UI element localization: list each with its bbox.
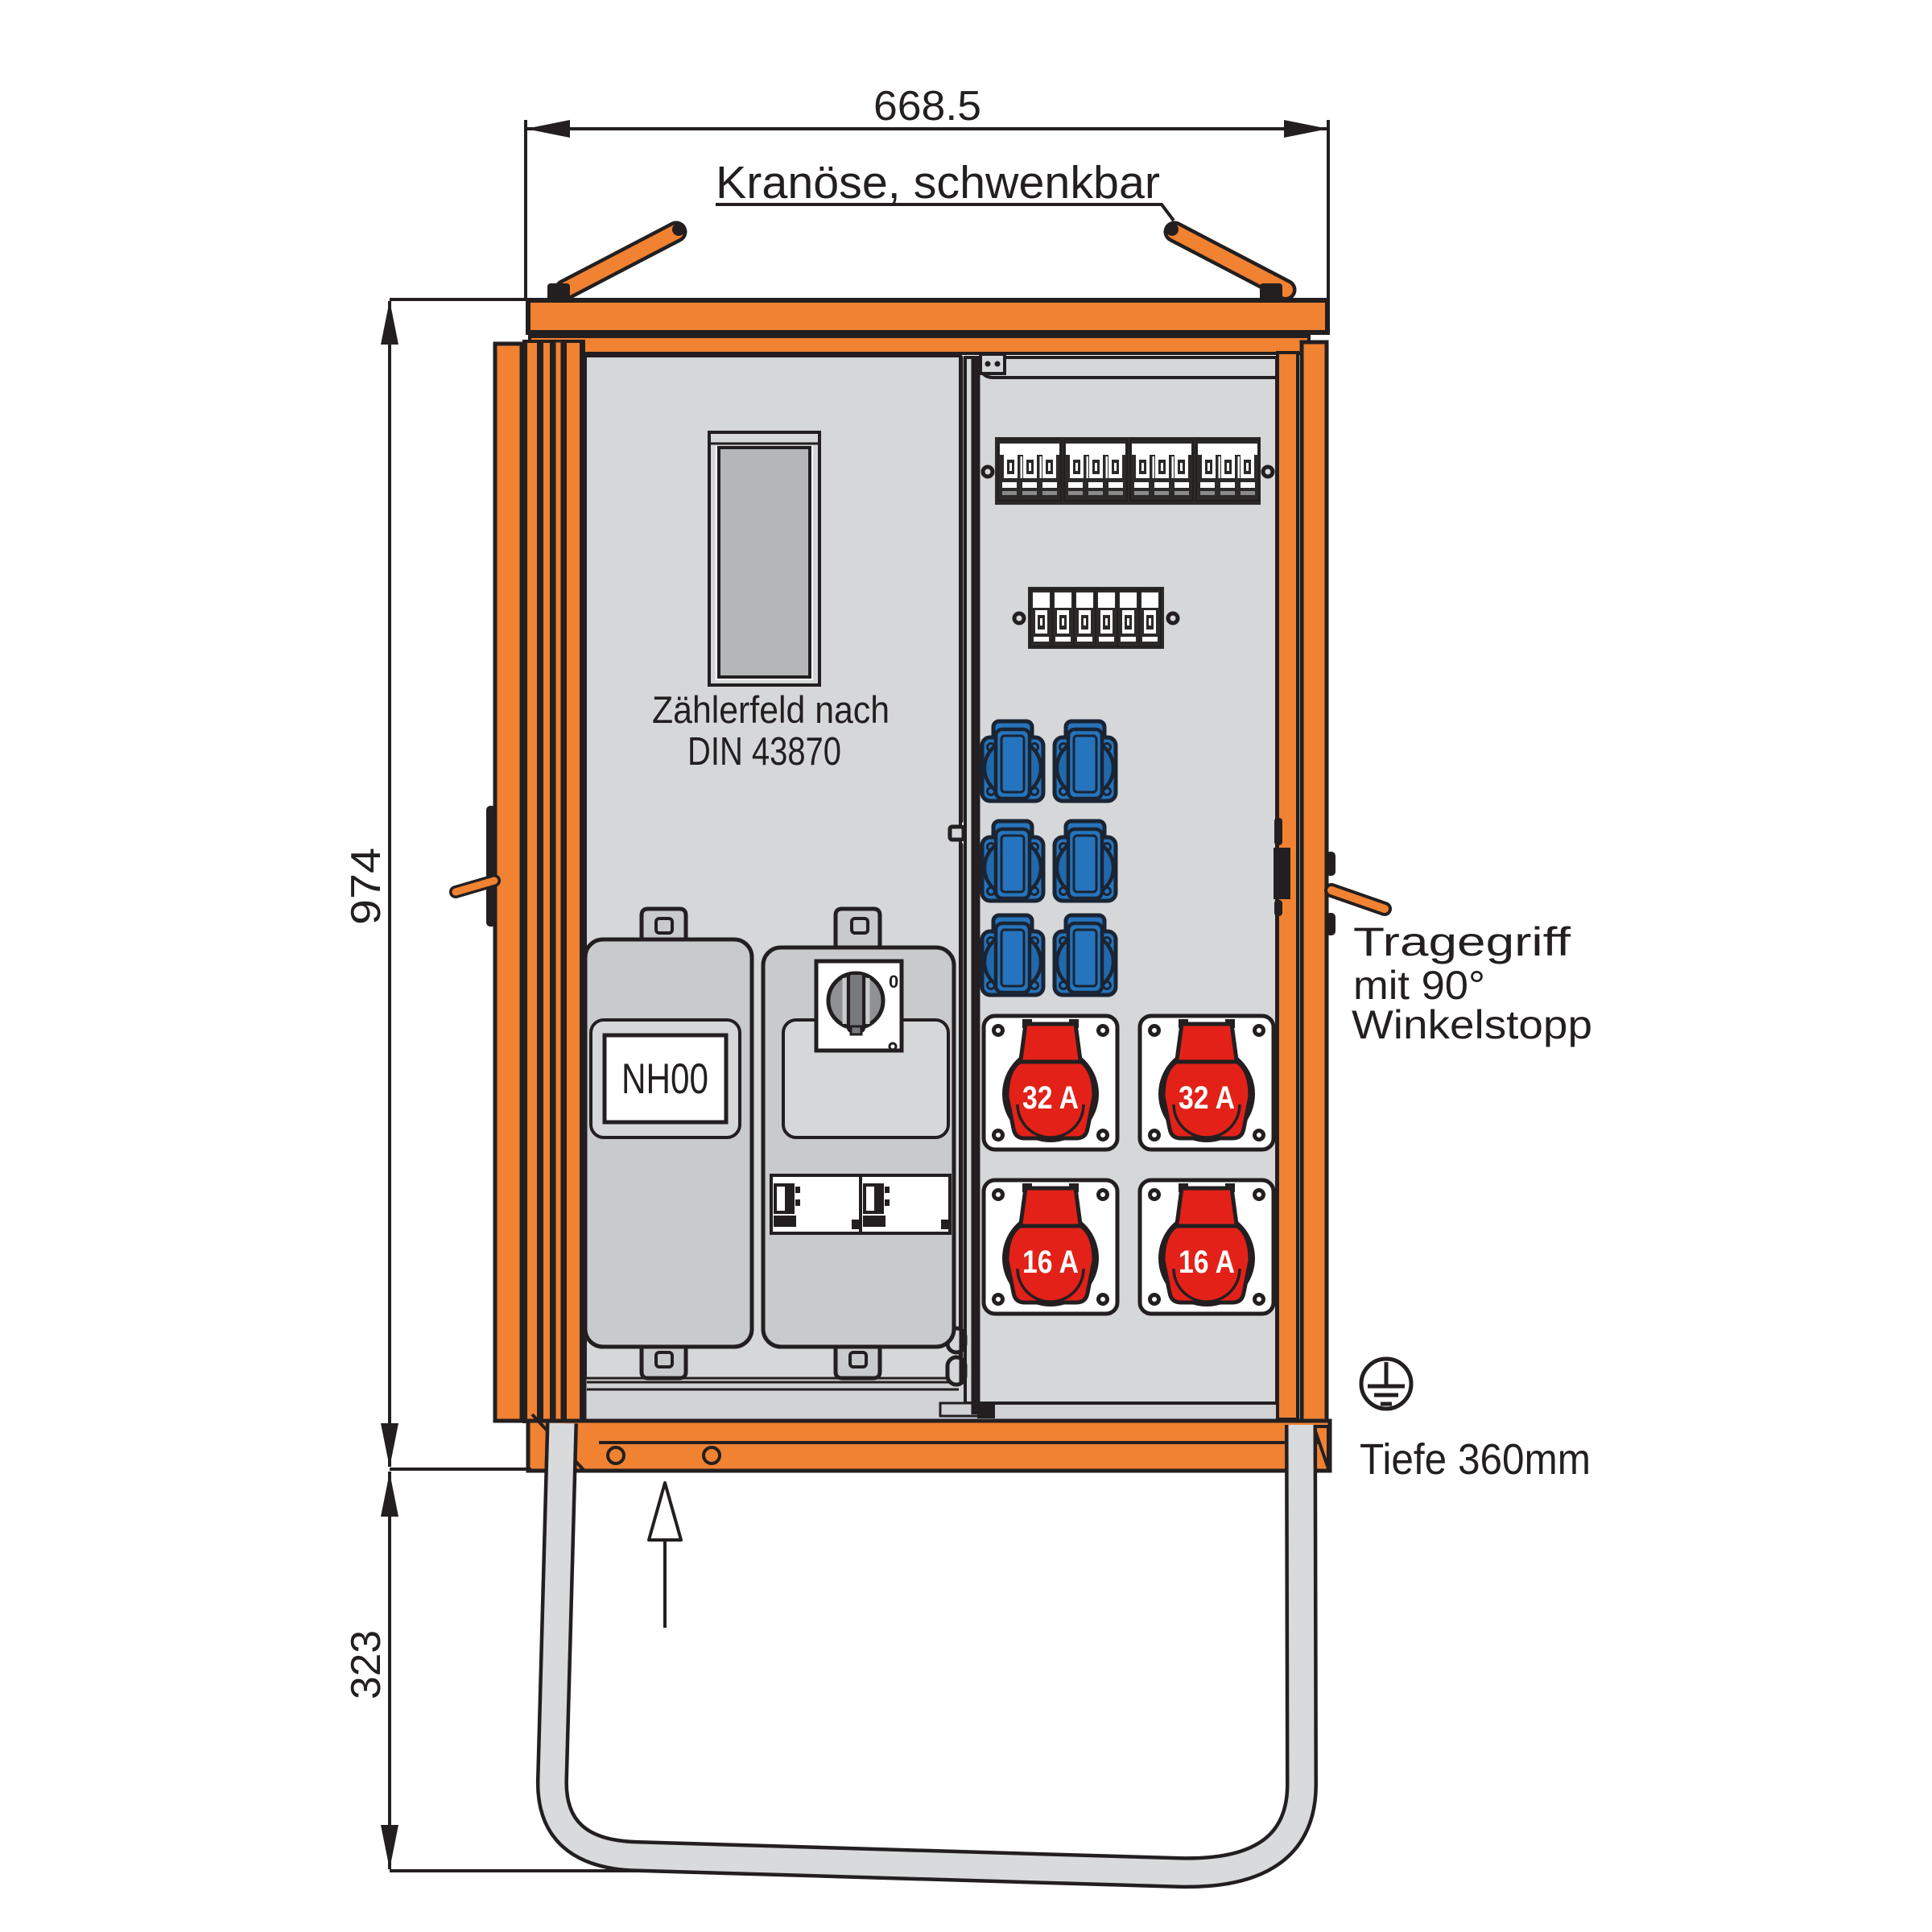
svg-text:DIN 43870: DIN 43870 bbox=[687, 730, 841, 774]
svg-text:Tiefe 360mm: Tiefe 360mm bbox=[1360, 1435, 1591, 1484]
svg-text:16 A: 16 A bbox=[1022, 1245, 1079, 1280]
svg-text:16 A: 16 A bbox=[1179, 1245, 1235, 1280]
svg-text:mit 90°: mit 90° bbox=[1353, 963, 1485, 1008]
svg-text:32 A: 32 A bbox=[1022, 1080, 1079, 1116]
svg-text:0: 0 bbox=[889, 972, 898, 992]
svg-text:NH00: NH00 bbox=[621, 1055, 708, 1103]
svg-text:668.5: 668.5 bbox=[873, 83, 981, 130]
svg-text:Kranöse, schwenkbar: Kranöse, schwenkbar bbox=[716, 157, 1160, 208]
svg-text:Winkelstopp: Winkelstopp bbox=[1352, 1002, 1592, 1047]
svg-text:323: 323 bbox=[343, 1630, 390, 1699]
svg-text:Tragegriff: Tragegriff bbox=[1353, 919, 1571, 964]
svg-text:32 A: 32 A bbox=[1179, 1080, 1235, 1116]
svg-text:974: 974 bbox=[343, 848, 390, 925]
svg-text:Zählerfeld nach: Zählerfeld nach bbox=[652, 688, 890, 731]
